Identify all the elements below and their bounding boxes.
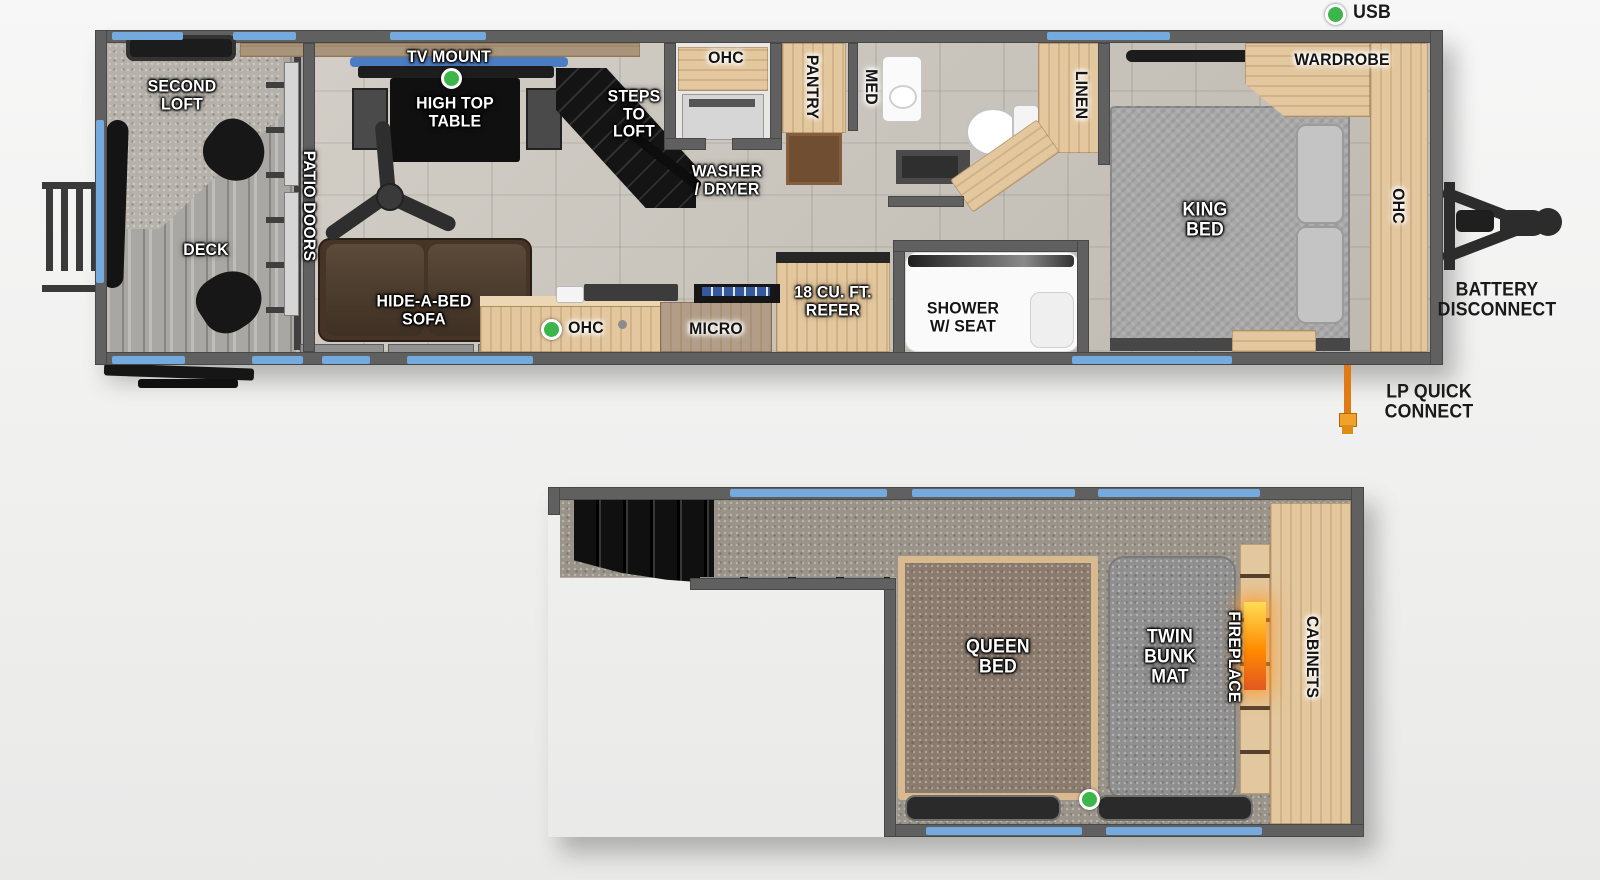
high-top-table-label: HIGH TOPTABLE [416, 94, 494, 129]
tv-mount-label: TV MOUNT [407, 48, 491, 66]
window [912, 489, 1075, 497]
queen-bed-label: QUEENBED [966, 637, 1030, 677]
shower-wall [893, 240, 905, 354]
med-sink [882, 56, 922, 122]
shower-wall [1077, 240, 1089, 354]
kitchen-usb-indicator [541, 319, 562, 340]
window [112, 32, 183, 40]
loft-window-inset [905, 795, 1061, 821]
window [252, 356, 303, 364]
micro-label: MICRO [689, 320, 743, 338]
washer-slot [689, 99, 755, 107]
countertop-appliance [584, 284, 678, 301]
hide-a-bed-sofa-label: HIDE-A-BEDSOFA [377, 292, 472, 327]
patio-doors-label: PATIO DOORS [300, 151, 318, 261]
window [233, 32, 296, 40]
tv-mount-usb-indicator [441, 68, 462, 89]
patio-door-panel [284, 192, 299, 316]
shower-seat [1030, 292, 1074, 348]
closet-wall [664, 43, 676, 150]
hitch-jack [1456, 210, 1494, 232]
cooktop [694, 284, 780, 303]
pantry-label: PANTRY [803, 55, 821, 119]
window [322, 356, 370, 364]
countertop-appliance [556, 286, 584, 303]
washer-dryer-unit [682, 94, 764, 140]
bath-wall [848, 43, 858, 131]
queen-mattress [905, 563, 1091, 793]
bedroom-wall [1098, 43, 1110, 165]
fireplace-flame [1244, 602, 1266, 690]
step-rung [61, 189, 68, 271]
vanity-shelf-inner [902, 156, 958, 178]
lp-quick-connect-label: LP QUICKCONNECT [1385, 382, 1474, 422]
lp-hose [1344, 365, 1351, 415]
patio-door-panel [284, 62, 299, 186]
pillow [1296, 124, 1344, 224]
closet-wall [732, 138, 782, 150]
linen-label: LINEN [1072, 71, 1090, 119]
bedroom-ohc-label: OHC [1389, 188, 1407, 224]
window [1072, 356, 1232, 364]
queen-bed [898, 556, 1098, 800]
loft-walkway-wall [690, 578, 896, 590]
window [112, 356, 185, 364]
pillow [1296, 226, 1344, 324]
washer-dryer-label: WASHER/ DRYER [692, 162, 763, 197]
bath-wall [888, 196, 964, 207]
shower-wall [893, 240, 1089, 252]
window [1098, 489, 1260, 497]
kitchen-ohc-label: OHC [568, 319, 604, 337]
shower-label: SHOWERW/ SEAT [927, 299, 999, 334]
window [1047, 32, 1170, 40]
fridge-top-edge [776, 252, 890, 263]
twin-bunk-mat-label: TWINBUNKMAT [1144, 627, 1196, 686]
hitch-cross-bar [1444, 182, 1455, 270]
loft-usb-indicator [1079, 789, 1100, 810]
floorplan-canvas: SECONDLOFT DECK PATIO DOORS TV MOUNT HIG… [0, 0, 1600, 880]
shower-glass [908, 255, 1074, 267]
entry-step [138, 379, 238, 388]
cabinet-knob [618, 320, 627, 329]
cooktop-burners [702, 287, 770, 296]
loft-wall-right [1351, 487, 1364, 837]
closet-ohc-label: OHC [708, 49, 744, 67]
closet-wall [664, 138, 706, 150]
window [926, 827, 1082, 835]
window [96, 120, 104, 283]
refer-label: 18 CU. FT.REFER [794, 283, 871, 318]
step-rung [76, 189, 83, 271]
king-bed-label: KINGBED [1183, 200, 1228, 240]
hitch-coupler-head [1534, 208, 1562, 236]
loft-wall-left [884, 578, 896, 837]
battery-disconnect-label: BATTERYDISCONNECT [1438, 280, 1557, 320]
usb-label: USB [1353, 3, 1391, 23]
med-label: MED [862, 69, 880, 105]
step-rung [46, 189, 53, 271]
lp-fitting-tip [1342, 425, 1353, 434]
second-loft-label: SECONDLOFT [148, 77, 217, 112]
steps-to-loft-label: STEPSTOLOFT [608, 87, 661, 140]
wardrobe-label: WARDROBE [1294, 51, 1389, 69]
pantry-base-cabinet [786, 133, 842, 185]
exterior-steps [42, 182, 100, 292]
sink-bowl [889, 85, 917, 109]
loft-wall-endcap [548, 487, 560, 515]
closet-wall [770, 43, 782, 150]
usb-indicator [1325, 4, 1346, 25]
window [407, 356, 533, 364]
bed-step [1232, 330, 1316, 352]
cabinets-label: CABINETS [1303, 616, 1321, 698]
exterior-wall-top [95, 30, 1443, 43]
window [390, 32, 486, 40]
fan-hub [376, 183, 404, 211]
window [1106, 827, 1262, 835]
fireplace-label: FIREPLACE [1225, 611, 1243, 702]
deck-label: DECK [183, 241, 229, 259]
loft-window-inset [1097, 795, 1253, 821]
window [730, 489, 887, 497]
